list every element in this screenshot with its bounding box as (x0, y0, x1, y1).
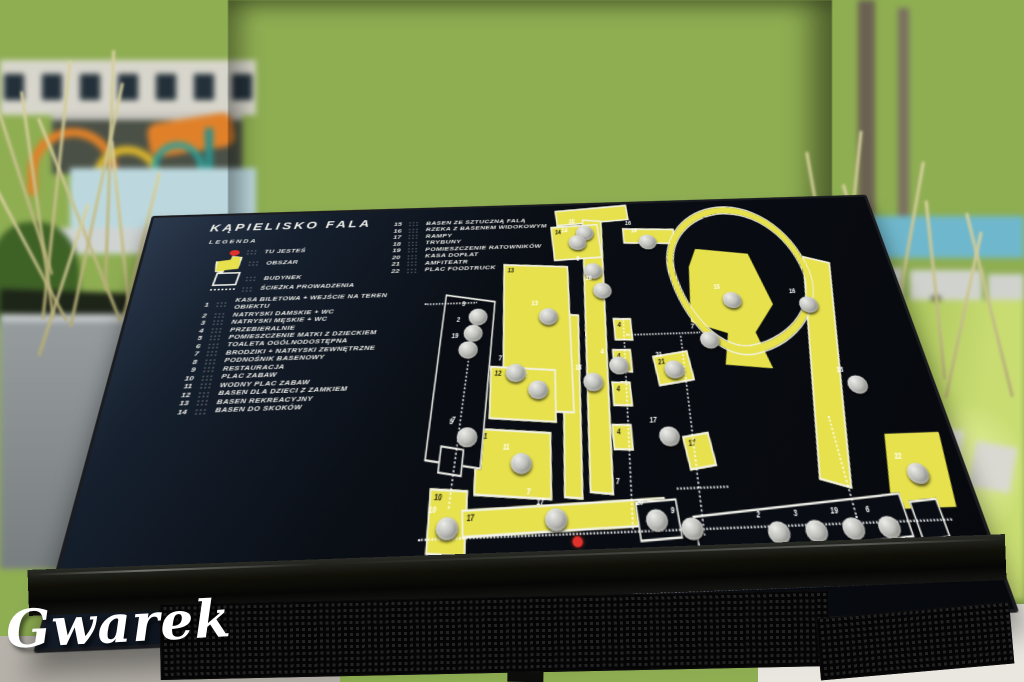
legend-number: 14 (167, 407, 188, 416)
legend-number: 6 (182, 342, 201, 350)
braille-dots (207, 342, 221, 348)
braille-dots (245, 276, 258, 282)
map-button-number: 7 (498, 354, 502, 363)
legend-label: BUDYNEK (263, 273, 302, 281)
braille-dots (406, 268, 418, 273)
legend-symbol-icon (212, 272, 241, 286)
map-area-number: 10 (434, 492, 442, 503)
map-area-number: 22 (872, 435, 882, 445)
braille-dots (407, 254, 419, 259)
map-area-number: 13 (508, 267, 514, 275)
braille-dots (211, 319, 225, 325)
braille-dots (208, 335, 222, 341)
legend-number: 8 (178, 358, 198, 366)
map-button-number: 19 (452, 332, 459, 340)
legend-number: 1 (191, 301, 210, 308)
legend-symbol-icon (214, 256, 243, 273)
braille-dots (204, 358, 218, 364)
map-area-number: 4 (617, 427, 621, 437)
legend-label: BASEN DO SKOKÓW (214, 403, 302, 415)
legend-number: 10 (175, 374, 195, 382)
braille-dots (408, 221, 420, 226)
concrete-block (968, 441, 1017, 494)
map-button-number: 17 (536, 496, 544, 507)
map-label-7: 7 (615, 476, 620, 486)
braille-dots (197, 391, 212, 398)
map-label-7: 7 (527, 486, 531, 496)
map-area-4: 4 (611, 381, 633, 406)
map-path (626, 332, 700, 336)
map-button-number: 14 (561, 227, 568, 234)
map-area-number: 4 (617, 321, 621, 329)
braille-dots (202, 366, 216, 372)
braille-dots (194, 408, 209, 415)
legend-label: OBSZAR (266, 259, 299, 267)
legend-label: TU JESTEŚ (264, 247, 306, 255)
map-button-number: 18 (835, 365, 844, 374)
braille-dots (407, 241, 419, 246)
map-button-number: 20 (635, 497, 644, 508)
legend-number: 13 (169, 399, 189, 408)
map-label-16: 16 (702, 216, 709, 223)
you-are-here-marker (572, 536, 583, 547)
map-button-number: 15 (713, 283, 721, 291)
braille-dots (246, 250, 259, 255)
map-area-number: 17 (467, 512, 475, 523)
map-button-number: 16 (630, 227, 637, 234)
braille-dots (241, 286, 254, 292)
legend-number: 5 (184, 334, 203, 342)
braille-dots (195, 399, 210, 406)
board-title: KĄPIELISKO FALA (209, 218, 372, 234)
map-button-number: 21 (655, 350, 663, 359)
map-path (677, 486, 729, 490)
braille-dots (213, 312, 227, 318)
map-area-17: 17 (682, 432, 717, 471)
braille-dots (210, 327, 224, 333)
legend-number: 4 (185, 327, 204, 335)
braille-dots (406, 261, 418, 266)
map-button-number: 8 (576, 255, 580, 262)
map-button-17[interactable]: 17 (658, 426, 682, 447)
map-button-number: 11 (503, 442, 510, 452)
legend-symbol-icon (210, 288, 235, 290)
map-area-4: 4 (611, 424, 634, 451)
map-building (437, 445, 464, 477)
map-button-number: 10 (428, 505, 436, 516)
watermark: Gwarek (5, 588, 233, 661)
braille-dots (247, 261, 260, 266)
legend-number: 9 (177, 366, 197, 374)
braille-dots (215, 301, 229, 307)
map-button-number: 17 (649, 415, 657, 425)
legend-number: 7 (180, 350, 200, 358)
map-button-number: 3 (462, 300, 465, 308)
map-label-16: 16 (624, 220, 631, 227)
legend-symbol-icon (229, 250, 240, 256)
legend-number: 12 (171, 390, 191, 399)
braille-dots (205, 350, 219, 356)
map-button-number: 2 (457, 315, 460, 323)
vent-grille-left (159, 590, 830, 680)
map-button-number: 13 (531, 299, 538, 307)
map-label-7: 7 (452, 415, 456, 424)
legend-heading: LEGENDA (208, 238, 258, 246)
braille-dots (200, 374, 214, 381)
map-button-number: 7 (690, 322, 695, 330)
braille-dots (199, 382, 214, 389)
map-button-number: 18 (575, 363, 583, 372)
map-button-number: 16 (585, 274, 592, 282)
braille-dots (408, 228, 420, 233)
photo-scene: KĄPIELISKO FALA LEGENDA TU JESTEŚ OBSZAR (0, 0, 1024, 682)
legend-number: 22 (383, 267, 400, 274)
map-area-number: 12 (495, 369, 502, 378)
map-area-number: 4 (616, 384, 620, 393)
legend-number: 11 (173, 382, 193, 391)
background-building (0, 60, 256, 115)
braille-dots (407, 247, 419, 252)
map-button-number: 15 (568, 218, 575, 225)
map-button-18[interactable]: 18 (845, 375, 871, 394)
tree-trunk (898, 8, 909, 243)
braille-dots (408, 234, 420, 239)
map-area-strip (582, 219, 614, 495)
